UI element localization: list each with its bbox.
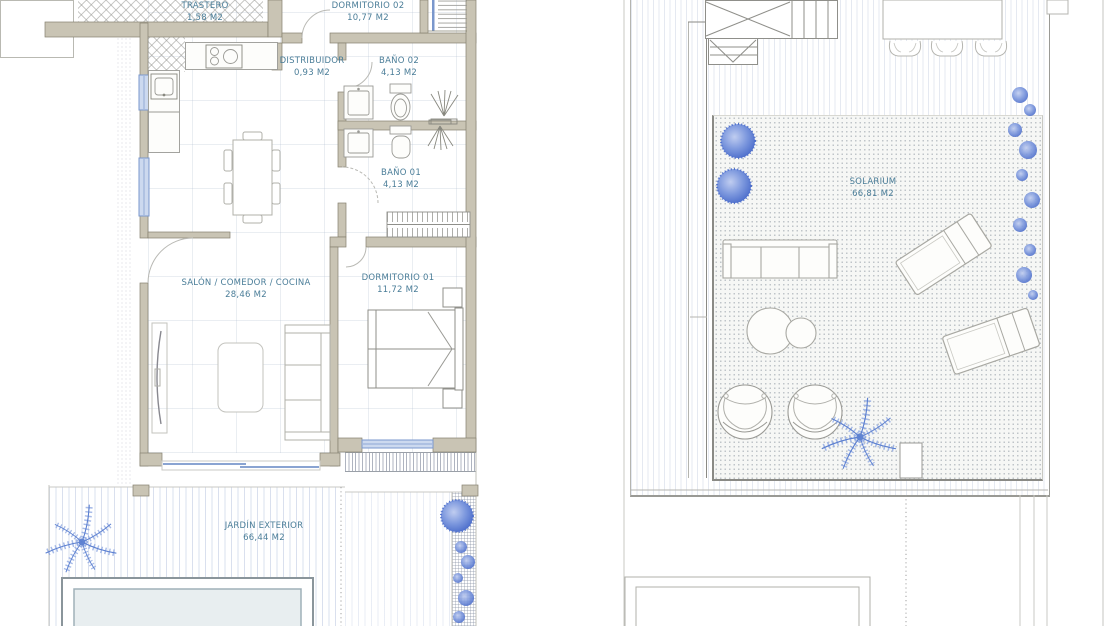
bush-icon bbox=[717, 169, 751, 203]
sliding-door bbox=[162, 461, 320, 470]
door-arc bbox=[346, 247, 366, 267]
bathroom-02 bbox=[344, 84, 458, 124]
label-solarium: SOLARIUM 66,81 M2 bbox=[793, 176, 953, 200]
patio-chair bbox=[889, 41, 920, 56]
room-name: BAÑO 01 bbox=[351, 167, 451, 179]
room-area: 1,58 M2 bbox=[145, 12, 265, 24]
bush-icon bbox=[721, 124, 755, 158]
tv-unit-icon bbox=[152, 323, 167, 433]
bathroom-sink-icon bbox=[344, 129, 373, 157]
label-trastero: TRASTERO 1,58 M2 bbox=[145, 0, 265, 24]
double-bed-icon bbox=[368, 288, 463, 408]
kitchen-counter bbox=[149, 71, 180, 153]
patio-chair bbox=[975, 41, 1006, 56]
dining-table-icon bbox=[224, 132, 280, 223]
solarium-walls bbox=[688, 20, 707, 478]
dining-chair bbox=[272, 183, 280, 204]
dining-table bbox=[233, 140, 272, 215]
egg-chair-icon bbox=[718, 385, 772, 439]
floor-plan-canvas: TRASTERO 1,58 M2 DORMITORIO 02 10,77 M2 … bbox=[0, 0, 1110, 626]
room-name: SALÓN / COMEDOR / COCINA bbox=[156, 277, 336, 289]
egg-chair-icon bbox=[788, 385, 842, 439]
dining-chair bbox=[243, 132, 262, 140]
dining-chair bbox=[272, 150, 280, 171]
outdoor-sofa-icon bbox=[723, 240, 837, 278]
sofa-icon bbox=[285, 325, 330, 440]
dining-chair bbox=[224, 150, 232, 171]
room-name: DORMITORIO 01 bbox=[318, 272, 478, 284]
bathroom-sink-icon bbox=[344, 86, 373, 119]
patio-table-icon bbox=[883, 0, 1007, 56]
label-bano-01: BAÑO 01 4,13 M2 bbox=[351, 167, 451, 191]
shower-icon bbox=[431, 90, 458, 124]
pool-icon bbox=[62, 578, 313, 626]
living-room-furniture bbox=[152, 323, 330, 440]
nightstand bbox=[443, 389, 462, 408]
bush-icon bbox=[441, 500, 473, 532]
label-salon-comedor-cocina: SALÓN / COMEDOR / COCINA 28,46 M2 bbox=[156, 277, 336, 301]
label-bano-02: BAÑO 02 4,13 M2 bbox=[349, 55, 449, 79]
room-area: 66,44 M2 bbox=[174, 532, 354, 544]
label-dormitorio-01: DORMITORIO 01 11,72 M2 bbox=[318, 272, 478, 296]
room-name: TRASTERO bbox=[145, 0, 265, 12]
palm-plant-icon bbox=[45, 504, 116, 573]
dining-chair bbox=[243, 215, 262, 223]
wardrobe-icon bbox=[387, 212, 470, 237]
room-area: 66,81 M2 bbox=[793, 188, 953, 200]
toilet-icon bbox=[390, 126, 411, 158]
pool-outline bbox=[625, 577, 870, 626]
room-name: DORMITORIO 02 bbox=[288, 0, 448, 12]
room-area: 28,46 M2 bbox=[156, 289, 336, 301]
room-area: 4,13 M2 bbox=[349, 67, 449, 79]
toilet-icon bbox=[390, 84, 411, 120]
room-area: 11,72 M2 bbox=[318, 284, 478, 296]
room-name: JARDÍN EXTERIOR bbox=[174, 520, 354, 532]
room-name: SOLARIUM bbox=[793, 176, 953, 188]
sun-lounger-icon bbox=[895, 213, 992, 296]
plan-roof-floor bbox=[624, 0, 1103, 626]
room-area: 10,77 M2 bbox=[288, 12, 448, 24]
coffee-table-icon bbox=[218, 343, 263, 412]
round-table-icon bbox=[786, 318, 816, 348]
roof-staircase-icon bbox=[706, 0, 838, 65]
sun-lounger-icon bbox=[942, 308, 1040, 375]
label-dormitorio-02: DORMITORIO 02 10,77 M2 bbox=[288, 0, 448, 24]
label-jardin-exterior: JARDÍN EXTERIOR 66,44 M2 bbox=[174, 520, 354, 544]
solarium-step bbox=[900, 443, 922, 478]
patio-chair bbox=[931, 41, 962, 56]
chimney-outline bbox=[1047, 0, 1068, 14]
room-name: BAÑO 02 bbox=[349, 55, 449, 67]
room-area: 4,13 M2 bbox=[351, 179, 451, 191]
dining-chair bbox=[224, 183, 232, 204]
climbing-plant-icon bbox=[1008, 87, 1040, 300]
climbing-plant-icon bbox=[453, 541, 475, 623]
